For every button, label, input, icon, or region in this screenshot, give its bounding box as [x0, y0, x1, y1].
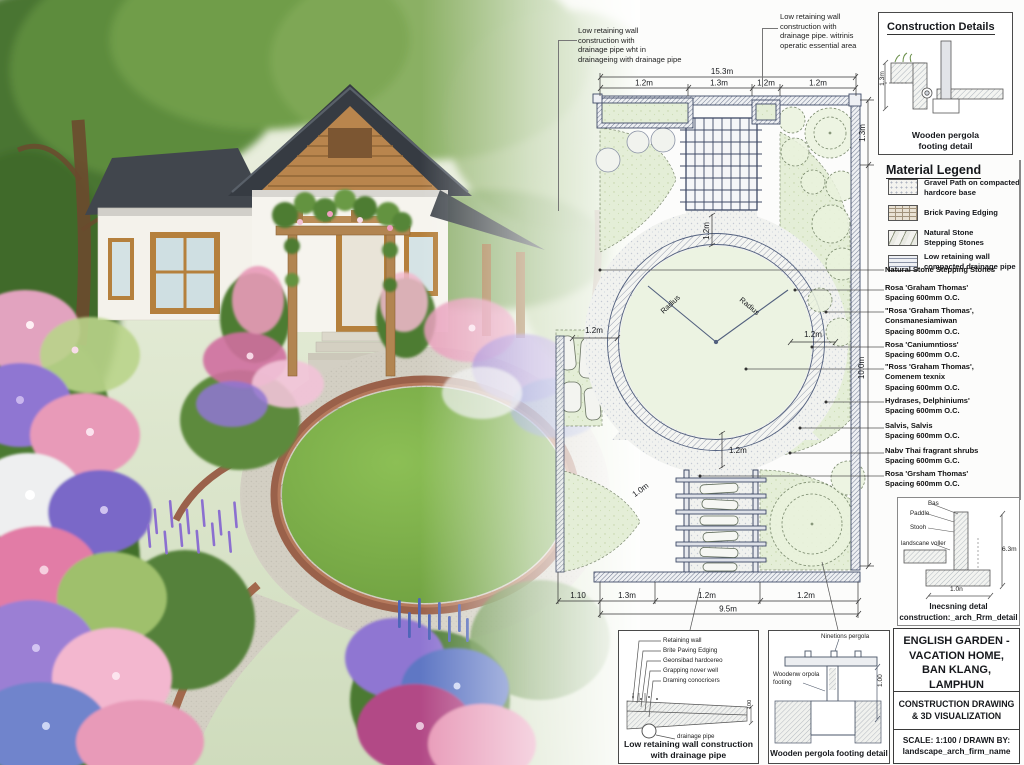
footing-trench [811, 701, 855, 735]
top-pergola-grid [680, 118, 762, 210]
construction-details-box: Construction Details 1.3m [878, 12, 1013, 155]
pergola-dim: 1.00 [877, 674, 884, 687]
pergola-post [941, 41, 951, 103]
wall-post [954, 512, 968, 570]
dim-top-overall: 15.3m [711, 67, 734, 76]
callout-stepping-stones: Natural Stone Stepping Stones [885, 265, 1021, 275]
side-dim-bottom: 1.0n [950, 586, 963, 593]
landscape-presentation-sheet: 15.3m 1.2m 1.3m 1.2m 1.2m 1.3m 10.0m 1.2… [0, 0, 1024, 765]
swatch-stepping-stones [888, 230, 918, 246]
dim-bottom-seg2: 1.3m [618, 591, 636, 600]
side-dim-right: 6.3m [1002, 546, 1017, 553]
dim-bottom-seg4: 1.2m [797, 591, 815, 600]
callout-hydrases: Hydrases, Delphiniums' Spacing 600mm O.C… [885, 396, 1021, 417]
bottom-pergola-steps [676, 470, 766, 580]
retaining-wall-detail-box: Retaining wall Brite Paving Edging Geons… [618, 630, 759, 764]
dim-bed-gap-left: 1.2m [585, 326, 603, 335]
annotation-retaining-wall-left: Low retaining wall construction with dra… [578, 26, 700, 64]
dim-top-seg2: 1.3m [710, 79, 728, 88]
dim-bottom-seg1: 1.10 [570, 591, 586, 600]
callout-rosa-3: Rosa 'Caniumntioss' Spacing 600mm O.C. [885, 340, 1021, 361]
annotation-leader-left [558, 40, 577, 211]
dim-right-side: 10.0m [857, 357, 866, 380]
callout-salvis: Salvis, Salvis Spacing 600mm O.C. [885, 421, 1021, 442]
pergola-footing-section-2 [769, 631, 887, 761]
callout-fragrant-shrubs: Nabv Thai fragrant shrubs Spacing 600mm … [885, 446, 1021, 467]
dim-path-width: 1.0m [631, 481, 651, 499]
dim-right-upper: 1.3m [858, 124, 867, 142]
drainage-pipe-circle [642, 724, 656, 738]
material-legend-title-wrap: Material Legend [886, 161, 981, 179]
side-detail-caption: Inecsning detal construction:_arch_Rrm_d… [898, 602, 1019, 623]
legend-label-stone: Natural Stone Stepping Stones [924, 228, 1020, 247]
wall-label-2: Brite Paving Edging [663, 647, 717, 655]
pergola-footing-caption-2: Wooden pergola footing detail [769, 749, 889, 760]
wall-label-5: Draming conocricers [663, 677, 720, 685]
left-wing-roof [85, 148, 268, 215]
dim-bottom-overall: 9.5m [719, 605, 737, 614]
drawing-type: CONSTRUCTION DRAWING & 3D VISUALIZATION [894, 699, 1019, 722]
legend-label-brick: Brick Paving Edging [924, 208, 1020, 218]
dim-top-seg1: 1.2m [635, 79, 653, 88]
retaining-wall-caption: Low retaining wall construction with dra… [619, 739, 758, 760]
dim-circle-gap: 1.2m [729, 446, 747, 455]
footing [926, 570, 990, 586]
wall-label-1: Retaining wall [663, 637, 702, 645]
gable-vent [328, 128, 372, 158]
annotation-retaining-wall-middle: Low retaining wall construction with dra… [780, 12, 882, 50]
side-label-4: landscane voller [901, 540, 946, 548]
side-detail-box: Bas Paddle Stooh landscane voller 6.3m 1… [897, 497, 1020, 626]
swatch-brick-edging [888, 205, 918, 221]
dim-top-seg4: 1.2m [809, 79, 827, 88]
swatch-gravel-path [888, 179, 918, 195]
pergola-footing-caption: Wooden pergola footing detail [879, 130, 1012, 151]
pergola-footing-section [879, 35, 1010, 125]
wall-dim: 100 [747, 700, 753, 709]
material-legend-title: Material Legend [886, 163, 981, 179]
callout-rosa-1: Rosa 'Graham Thomas' Spacing 600mm O.C. [885, 283, 1021, 304]
side-label-1: Bas [928, 500, 939, 508]
callout-rosa-4: "Ross 'Graham Thomas', Comenem texnix Sp… [885, 362, 1021, 393]
title-block-divider [894, 691, 1019, 692]
side-label-2: Paddle [910, 510, 929, 518]
legend-label-gravel: Gravel Path on compacted hardcore base [924, 178, 1020, 197]
title-block-divider [894, 729, 1019, 730]
wall-label-3: Geonsibad hardcereo [663, 657, 723, 665]
dim-bottom-seg3: 1.2m [698, 591, 716, 600]
plants-sprigs [895, 53, 912, 62]
pergola-beam [785, 657, 877, 666]
construction-details-title: Construction Details [887, 21, 995, 35]
pergola-left-label: Woodenw orpola footing [773, 671, 819, 686]
dim-bed-gap-right: 1.2m [804, 330, 822, 339]
callout-rosa-2: "Rosa 'Graham Thomas', Consmanesiamiwan … [885, 306, 1021, 337]
dim-pergola-gap: 1.2m [702, 222, 711, 240]
project-title: ENGLISH GARDEN - VACATION HOME, BAN KLAN… [894, 634, 1019, 692]
pergola-footing-detail-box: Ninetions pergola Woodenw orpola footing… [768, 630, 890, 764]
section-dim-height: 1.3m [879, 71, 886, 86]
side-label-3: Stooh [910, 524, 926, 532]
callout-rosa-5: Rosa 'Grsham Thomas' Spacing 600mm O.C. [885, 469, 1021, 490]
annotation-leader-middle [762, 28, 778, 87]
pergola-top-label: Ninetions pergola [821, 633, 869, 641]
footing-block [933, 99, 959, 113]
wall-label-4: Grapping nover well [663, 667, 718, 675]
sheet-right-margin-line [1019, 160, 1021, 500]
title-block: ENGLISH GARDEN - VACATION HOME, BAN KLAN… [893, 628, 1020, 764]
scale-drawn-by: SCALE: 1:100 / DRAWN BY: landscape_arch_… [894, 735, 1019, 757]
